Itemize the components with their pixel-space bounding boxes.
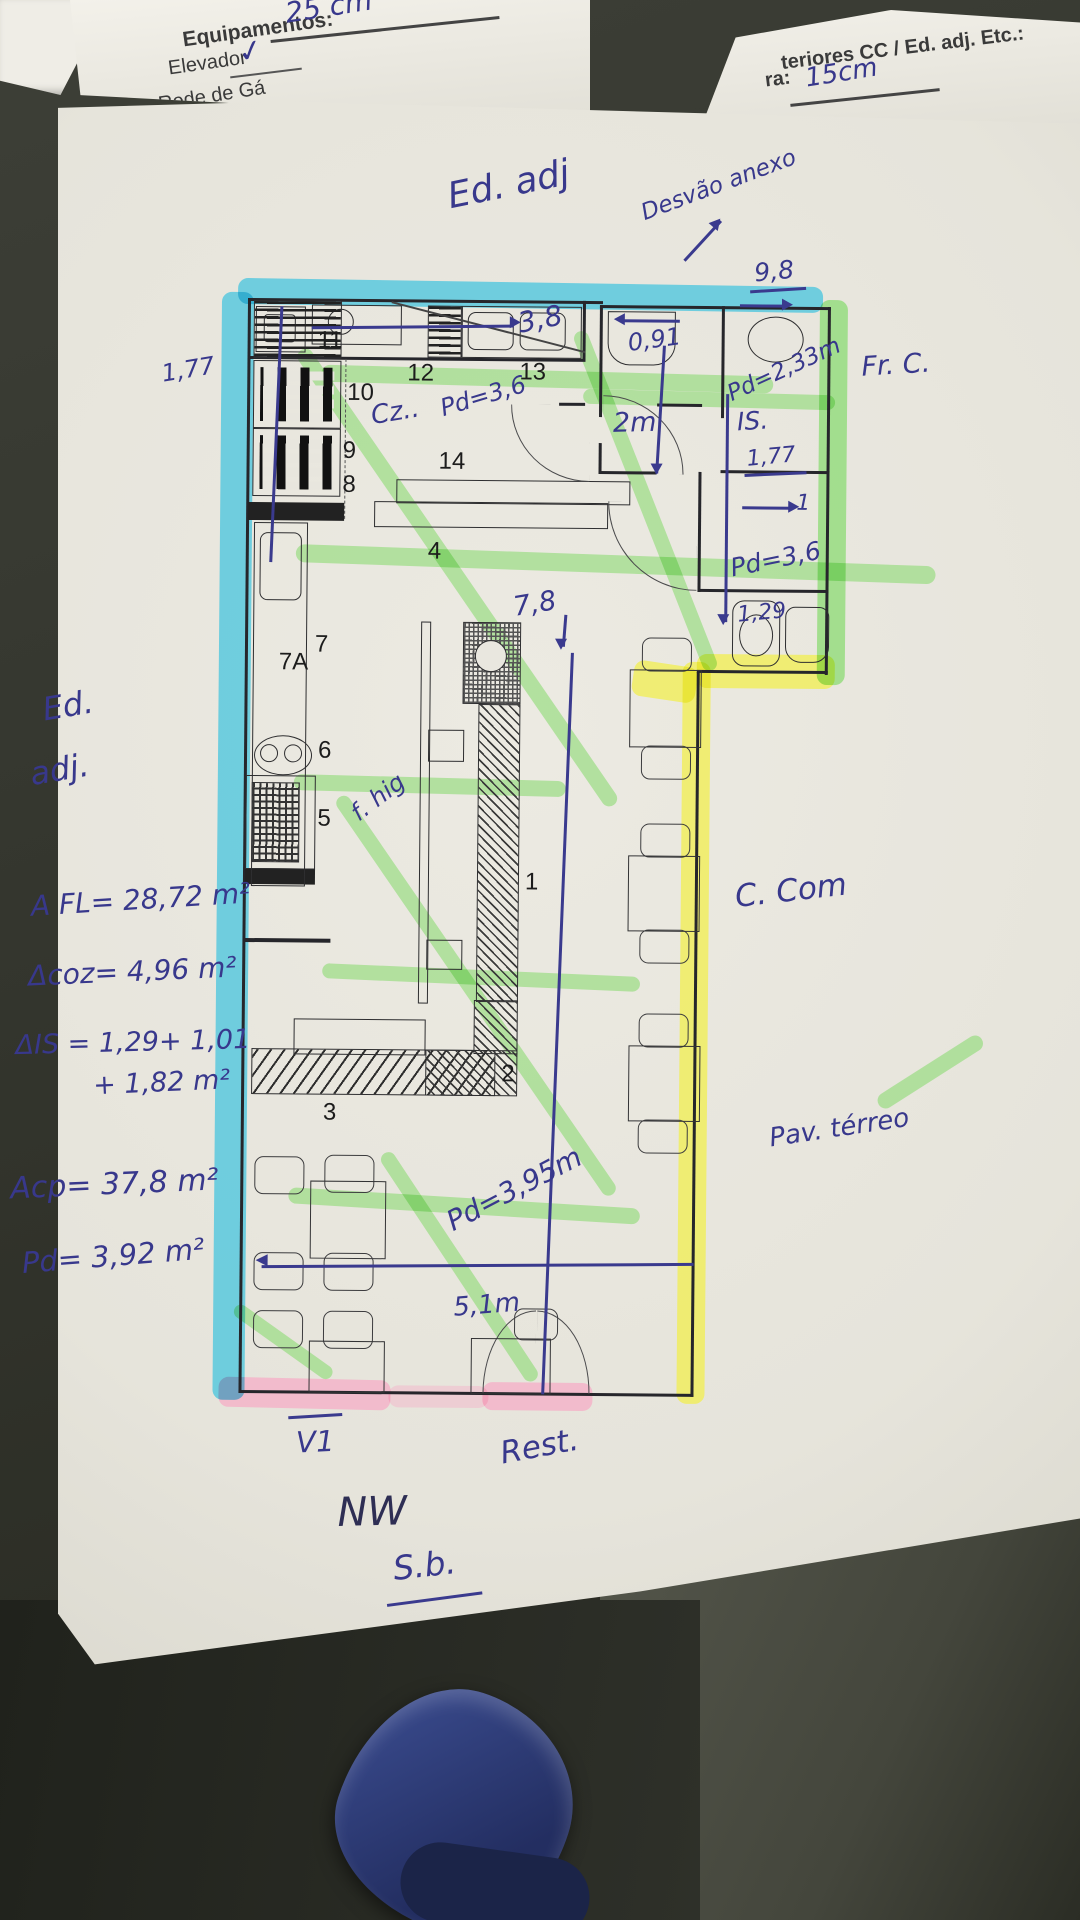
wall-vestibule-left2 — [599, 443, 602, 473]
hatched-elbow-b — [473, 1000, 517, 1054]
arrowhead-down-icon — [717, 614, 729, 631]
room-number-4: 4 — [428, 538, 442, 566]
room-number-5: 5 — [317, 805, 331, 833]
green-stroke-pav — [875, 1032, 986, 1111]
stove-icon-9 — [253, 360, 342, 429]
cabinet-front — [426, 940, 462, 970]
room-number-8: 8 — [342, 471, 356, 499]
note-ed-adj-top: Ed. adj — [444, 152, 573, 217]
burner-circle-icon — [260, 744, 278, 762]
cabinet-door — [259, 532, 302, 600]
measure-2m: 2m — [613, 407, 657, 439]
wall-wc-top — [697, 589, 828, 593]
note-frc: Fr. C. — [861, 348, 932, 383]
area-ais-2: + 1,82 m² — [93, 1064, 231, 1101]
measure-129: 1,29 — [736, 598, 787, 628]
measure-51m: 5,1m — [452, 1288, 521, 1323]
pen-arrow-091-line — [620, 319, 680, 322]
hatched-wall-strip — [476, 704, 521, 1002]
floor-plan: 11 12 13 10 9 8 14 7 7A 6 5 4 1 2 3 — [0, 0, 1080, 1920]
area-pd: Pd= 3,92 m² — [21, 1232, 206, 1280]
measure-1: 1 — [796, 491, 810, 516]
wall-room14-b — [657, 404, 702, 407]
wall-stub — [244, 938, 330, 943]
room-number-7: 7 — [315, 631, 329, 659]
table — [628, 1045, 701, 1122]
pen-measure-corridor-line — [724, 394, 728, 622]
chair — [638, 1119, 688, 1153]
table — [470, 1338, 550, 1395]
photo-of-floorplan: Equipamentos: Elevador Rede de Gá ✓ 25 c… — [0, 0, 1080, 1920]
bidet-icon — [785, 607, 829, 663]
arrowhead-left-icon — [608, 313, 625, 325]
room-number-7a: 7A — [279, 648, 309, 676]
label-is: IS. — [736, 405, 769, 436]
room-number-9: 9 — [343, 437, 357, 465]
room-number-6: 6 — [318, 737, 332, 765]
measure-091: 0,91 — [626, 322, 683, 357]
chair — [640, 823, 690, 857]
area-ais: ΔIS = 1,29+ 1,01 — [15, 1024, 251, 1061]
pen-long-vertical-line — [541, 653, 573, 1395]
note-cz: Cz.. — [369, 393, 422, 431]
measure-78: 7,8 — [511, 585, 558, 623]
door-arc-room14 — [510, 404, 590, 482]
duct-circle — [475, 640, 507, 672]
arrowhead-down-icon — [555, 639, 567, 656]
room-number-1: 1 — [525, 868, 539, 896]
cabinet-front — [428, 730, 464, 762]
area-acp: Acp= 37,8 m² — [10, 1162, 220, 1206]
table — [629, 669, 702, 748]
pen-arrow-toilet-line — [740, 304, 786, 307]
stove-icon-8 — [252, 428, 341, 497]
arrowhead-left-icon — [250, 1254, 268, 1266]
table — [628, 855, 701, 932]
wall-ledge-1 — [248, 502, 344, 521]
room-number-3: 3 — [323, 1099, 337, 1127]
room-number-2: 2 — [501, 1060, 515, 1088]
chair — [323, 1253, 373, 1291]
measure-pd395: Pd=3,95m — [441, 1140, 587, 1237]
pen-arrow-1-line — [742, 506, 792, 509]
note-nw: NW — [337, 1488, 408, 1536]
measure-177-left: 1,77 — [159, 351, 216, 387]
room-number-12: 12 — [407, 359, 434, 387]
arrowhead-down-icon — [650, 464, 662, 481]
table — [308, 1341, 384, 1394]
chair — [641, 745, 691, 779]
note-ccom: C. Com — [733, 867, 849, 915]
note-sb: S.b. — [391, 1542, 458, 1588]
measure-177-right: 1,77 — [746, 442, 797, 472]
note-ed-left: Ed. — [40, 683, 96, 729]
room-number-11: 11 — [318, 327, 343, 355]
underline-sb — [387, 1591, 483, 1607]
note-rest: Rest. — [497, 1422, 581, 1472]
chair — [254, 1156, 304, 1194]
note-adj-left: adj. — [27, 746, 91, 793]
chair — [638, 1013, 688, 1047]
door-arc-corridor — [607, 501, 697, 591]
chair — [642, 637, 692, 671]
room-number-14: 14 — [438, 448, 465, 476]
note-pav-terreo: Pav. térreo — [767, 1103, 911, 1153]
area-acoz: Δcoz= 4,96 m² — [28, 950, 238, 992]
counter-14-lower — [374, 501, 608, 529]
grate-grid-icon — [251, 782, 300, 862]
overbar-v1 — [288, 1413, 342, 1419]
arrowhead-right-icon — [782, 299, 799, 311]
table — [310, 1181, 387, 1260]
note-v1: V1 — [295, 1424, 335, 1460]
chair — [639, 929, 689, 963]
measure-98: 9,8 — [753, 255, 795, 288]
green-stroke-h1 — [321, 365, 773, 394]
burner-circle-icon — [284, 744, 302, 762]
chair — [253, 1310, 303, 1348]
